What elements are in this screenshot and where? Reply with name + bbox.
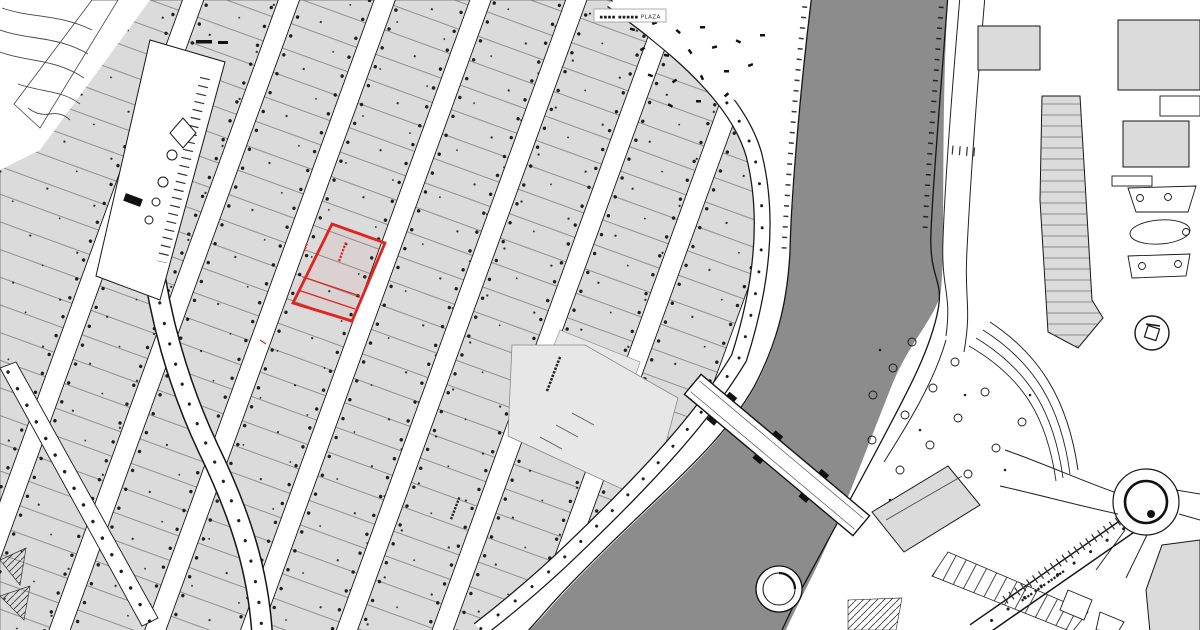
plaza-label: ▪▪▪▪ ▪▪▪▪▪ PLAZA — [594, 9, 666, 22]
quay-circle-structure — [756, 566, 802, 612]
terraced-park — [1128, 186, 1196, 278]
site-plan-map: ▪▪▪▪ ▪▪▪▪▪ PLAZA — [0, 0, 1200, 630]
hatch-ramp — [848, 598, 902, 630]
roundabout-small — [1135, 316, 1169, 350]
plaza-label-text: ▪▪▪▪ ▪▪▪▪▪ PLAZA — [599, 15, 660, 21]
site-plan-canvas: ▪▪▪▪ ▪▪▪▪▪ PLAZA — [0, 0, 1200, 630]
